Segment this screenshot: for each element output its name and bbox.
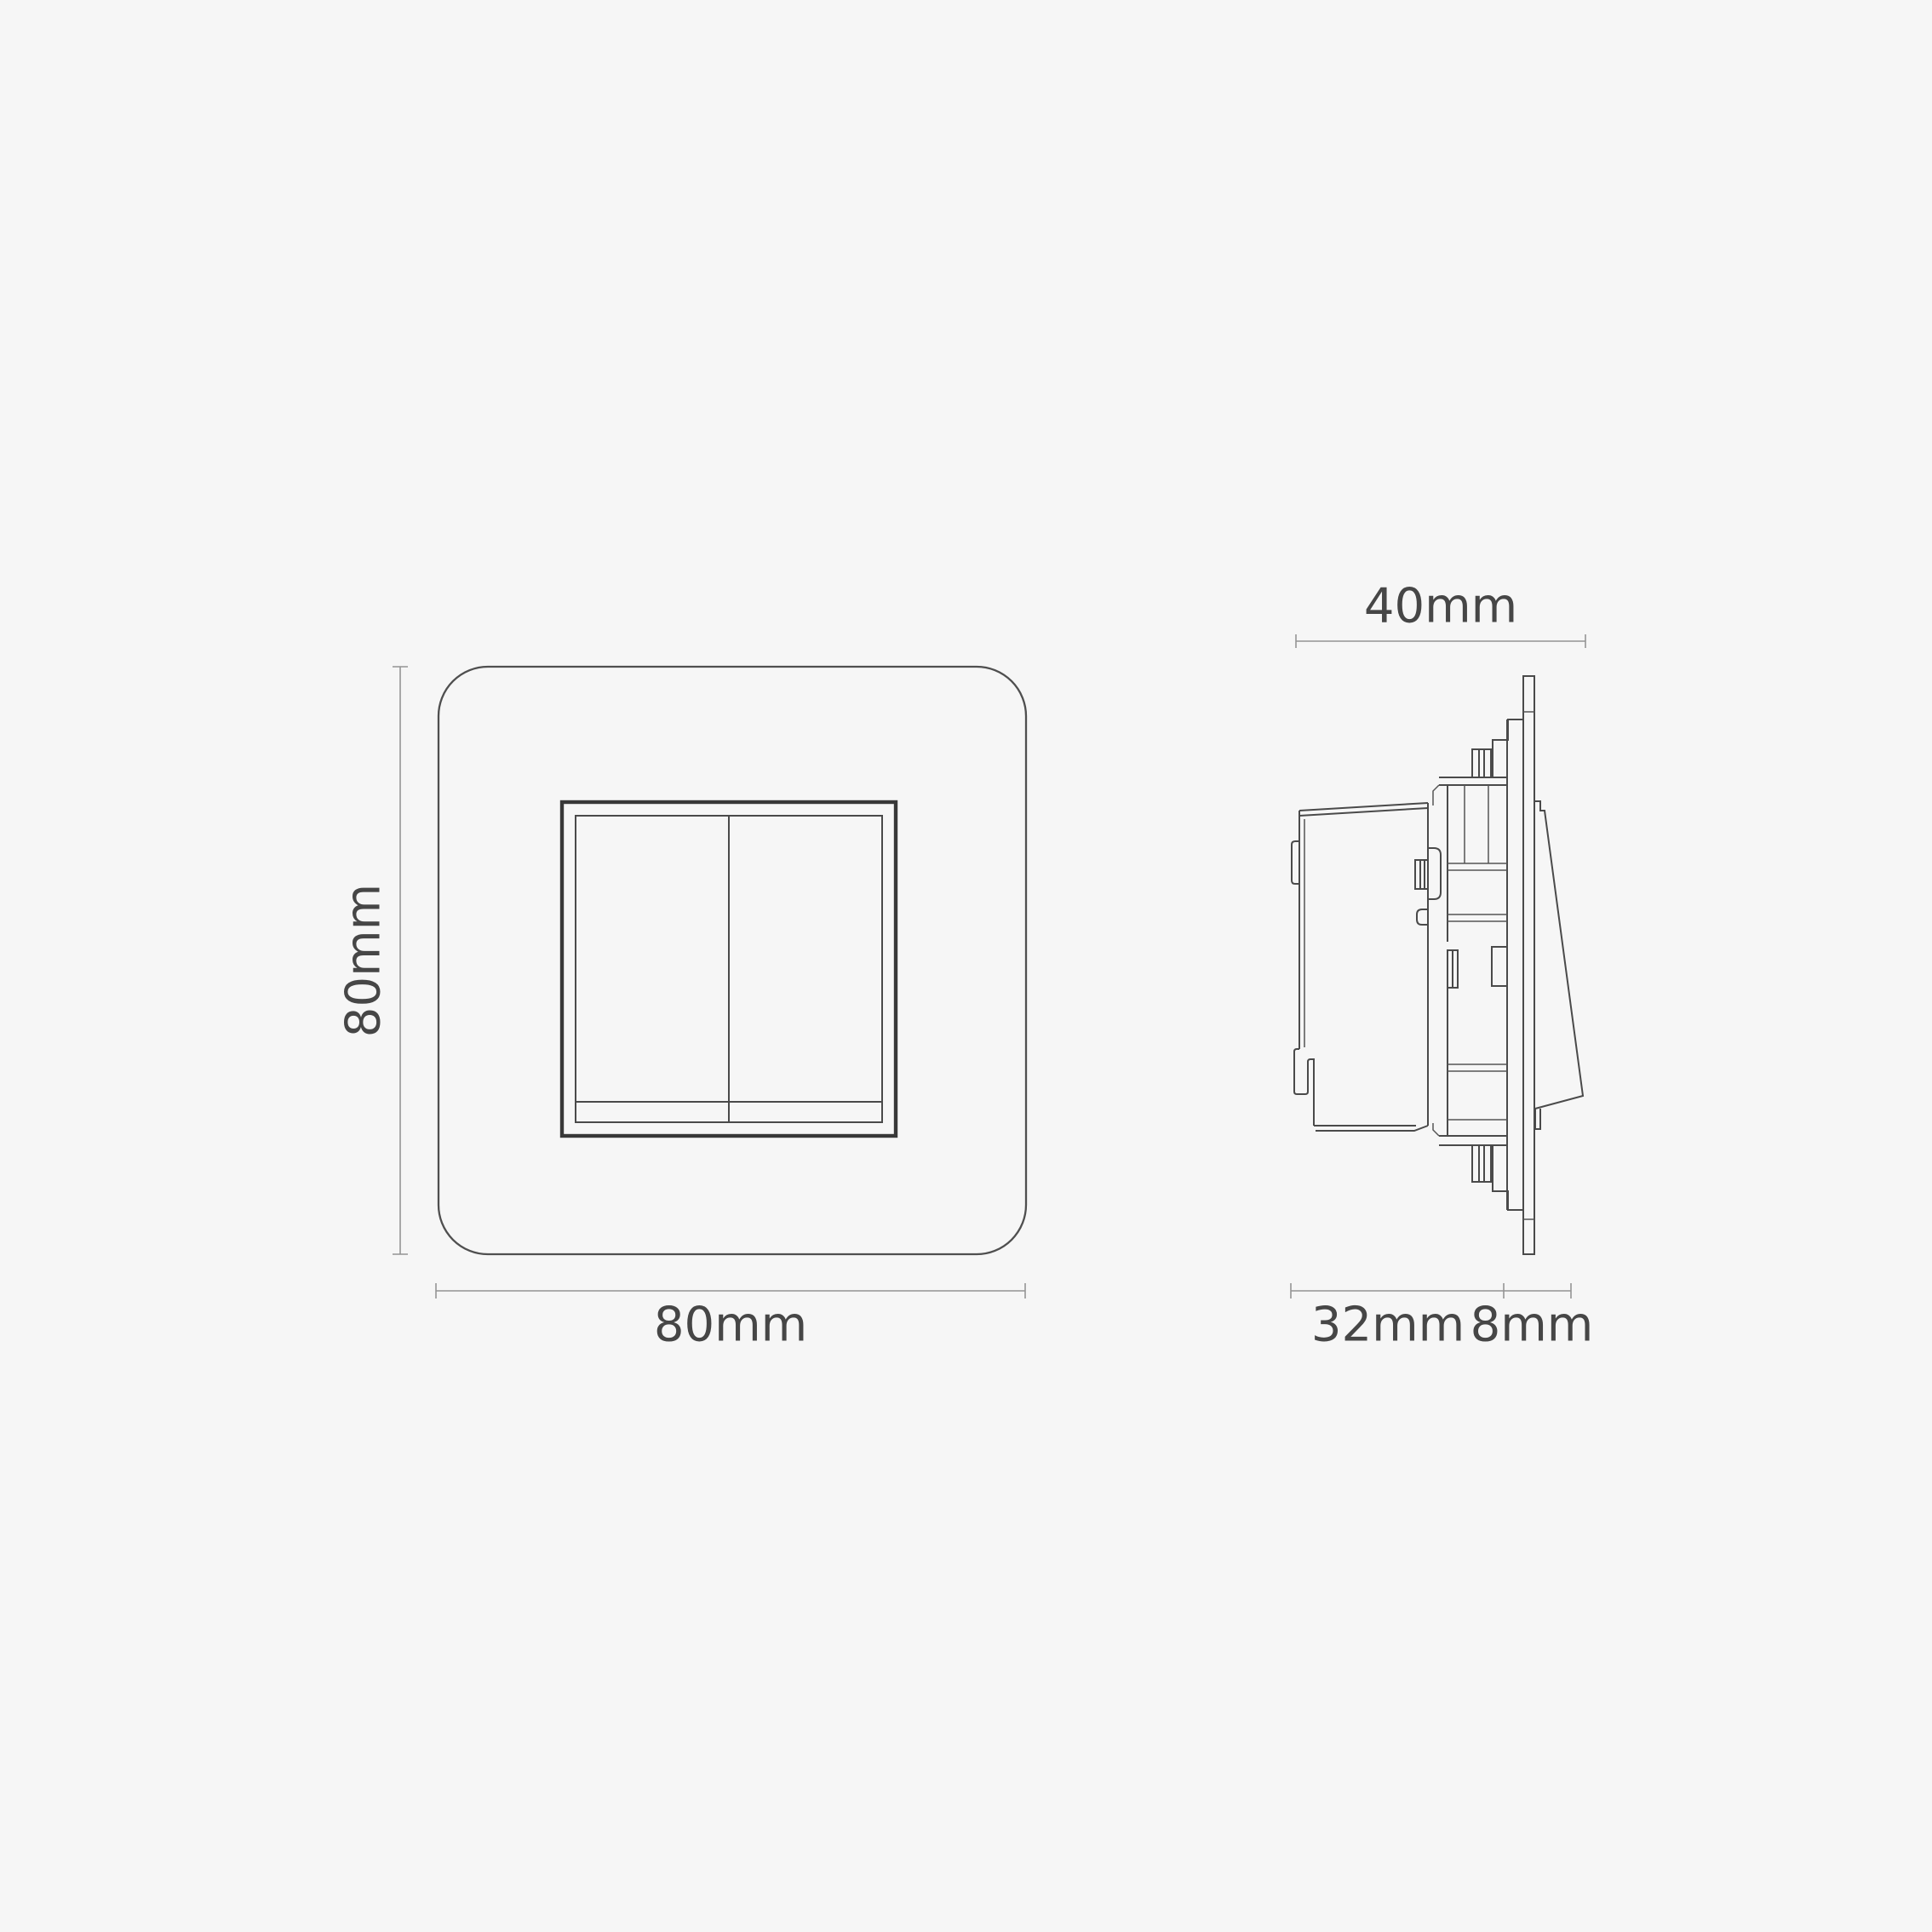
side-terminal-window-right (1492, 947, 1507, 986)
front-faceplate (439, 667, 1026, 1254)
side-bottom-dimension: 32mm 8mm (1291, 1283, 1593, 1353)
front-view: 80mm 80mm (336, 667, 1027, 1353)
front-width-label: 80mm (654, 1298, 807, 1353)
front-width-dimension: 80mm (436, 1283, 1025, 1353)
side-depth-label: 32mm (1311, 1298, 1465, 1353)
side-screw-tab-top (1472, 749, 1491, 777)
side-terminal-window-left (1448, 950, 1458, 988)
side-terminal-lug (1415, 860, 1429, 889)
dimension-drawing: 80mm 80mm 40mm (0, 0, 1932, 1932)
side-back-box (1292, 803, 1428, 1131)
side-screw-tab-bottom (1472, 1145, 1491, 1182)
dimension-drawing-page: 80mm 80mm 40mm (0, 0, 1932, 1932)
side-mechanism-module (1415, 719, 1507, 1210)
side-overall-label: 40mm (1364, 579, 1517, 634)
side-view: 40mm (1291, 579, 1593, 1353)
side-faceplate (1523, 676, 1534, 1254)
front-height-dimension: 80mm (336, 667, 409, 1254)
side-rocker (1534, 801, 1583, 1129)
front-height-label: 80mm (336, 884, 392, 1037)
side-overall-dimension: 40mm (1296, 579, 1585, 649)
side-wall-clip (1292, 841, 1299, 884)
side-foot-clip (1294, 1049, 1314, 1126)
side-plate-label: 8mm (1470, 1298, 1594, 1353)
